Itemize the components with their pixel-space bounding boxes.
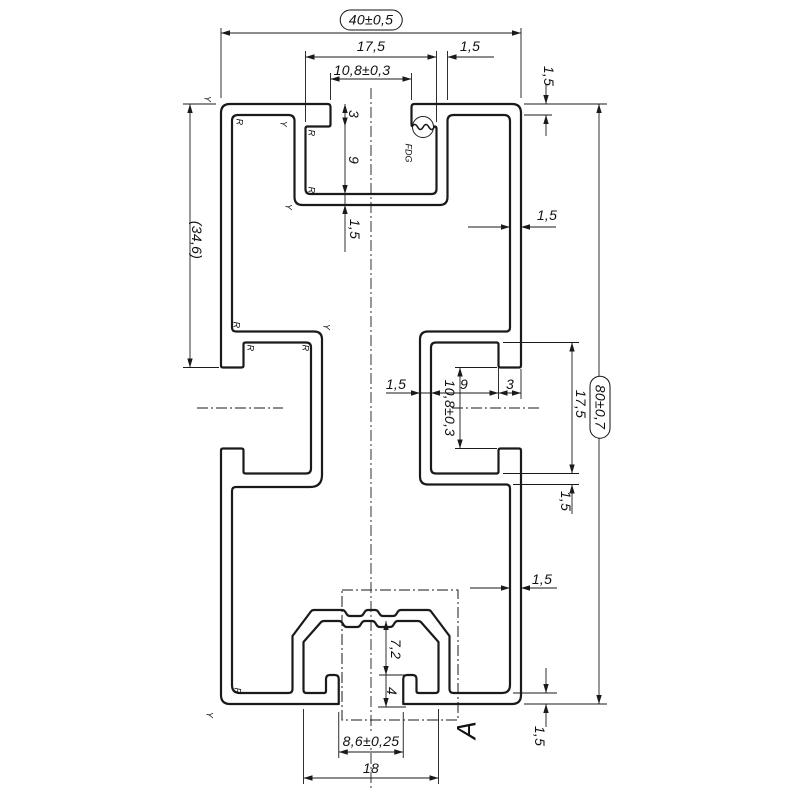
- dimension-arrow: [521, 585, 530, 590]
- y-mark: Y: [205, 712, 214, 718]
- technical-drawing-page: 40±0,5 17,5 10,8±0,3 1,5 1,5 (34,6) 3 9 …: [0, 0, 800, 800]
- dimension-arrow: [342, 185, 347, 194]
- dimension-arrow: [403, 76, 412, 81]
- dimension-arrow: [221, 30, 230, 35]
- dim-side-cavity-height: 17,5: [574, 390, 588, 418]
- dim-top-neck-depth: 3: [347, 110, 361, 118]
- radius-mark: R: [233, 688, 242, 695]
- radius-mark: R: [232, 322, 241, 329]
- dimension-arrow: [306, 54, 315, 59]
- dimension-arrow: [569, 343, 574, 352]
- functional-surface-label: FDG: [404, 144, 413, 163]
- dimension-arrow: [342, 118, 347, 127]
- dimension-arrow: [543, 704, 548, 713]
- dimension-arrow: [490, 390, 499, 395]
- dimension-arrow: [383, 698, 388, 707]
- dimension-arrow: [411, 390, 420, 395]
- radius-mark: R: [246, 345, 255, 352]
- dimension-arrow: [596, 695, 601, 704]
- dimension-arrow: [431, 390, 440, 395]
- dim-side-slot-wall: 1,5: [386, 377, 406, 391]
- y-mark: Y: [322, 324, 331, 330]
- profile-drawing-canvas: [0, 0, 800, 800]
- radius-mark: R: [307, 130, 316, 137]
- dim-top-cavity-depth: 9: [347, 156, 361, 164]
- dim-left-height-ref: (34,6): [190, 221, 204, 259]
- dimension-arrow: [428, 54, 437, 59]
- dimension-arrow: [543, 684, 548, 693]
- dim-lip-height: 4: [385, 687, 399, 695]
- dim-top-cavity-width: 17,5: [357, 39, 385, 53]
- dim-channel-inner-height: 7,2: [389, 639, 403, 659]
- dim-right-wall-lower: 1,5: [532, 572, 552, 586]
- dimension-arrow: [543, 95, 548, 104]
- dimension-arrow: [596, 104, 601, 113]
- dimension-arrow: [501, 224, 510, 229]
- dimension-arrow: [187, 104, 192, 113]
- radius-mark: R: [301, 345, 310, 352]
- dim-top-floor: 1,5: [348, 219, 362, 239]
- detail-a-label: A: [454, 721, 481, 739]
- dimension-arrow: [339, 749, 348, 754]
- dim-overall-height: 80±0,7: [590, 376, 611, 439]
- dim-side-cavity-depth: 9: [460, 377, 468, 391]
- dimension-arrow: [501, 585, 510, 590]
- dim-bottom-wall: 1,5: [533, 726, 547, 746]
- dim-channel-width: 18: [363, 761, 379, 775]
- dimension-arrow: [512, 30, 521, 35]
- dimension-arrow: [394, 749, 403, 754]
- dimension-arrow: [304, 775, 313, 780]
- dim-top-opening-width: 10,8±0,3: [334, 63, 391, 77]
- dimension-arrow: [448, 54, 457, 59]
- dim-overall-width: 40±0,5: [340, 10, 403, 31]
- dimension-arrow: [569, 465, 574, 474]
- dim-right-wall: 1,5: [537, 208, 557, 222]
- dimension-arrow: [187, 359, 192, 368]
- dimension-arrow: [457, 440, 462, 449]
- dim-side-neck-depth: 3: [506, 377, 514, 391]
- radius-mark: R: [307, 187, 316, 194]
- y-mark: Y: [203, 96, 212, 102]
- dim-top-wall: 1,5: [542, 66, 556, 86]
- dim-mouth-width: 8,6±0,25: [341, 734, 402, 748]
- dimension-arrow: [521, 224, 530, 229]
- y-mark: Y: [279, 121, 288, 127]
- dimension-arrow: [543, 115, 548, 124]
- radius-mark: R: [235, 119, 244, 126]
- dimension-arrow: [383, 666, 388, 675]
- y-mark: Y: [284, 204, 293, 210]
- dim-side-opening-height: 10,8±0,3: [443, 380, 457, 437]
- dim-side-under-wall: 1,5: [559, 491, 573, 511]
- dimension-arrow: [342, 205, 347, 214]
- dim-top-cavity-wall: 1,5: [460, 39, 480, 53]
- dimension-arrow: [383, 621, 388, 630]
- dimension-arrow: [430, 775, 439, 780]
